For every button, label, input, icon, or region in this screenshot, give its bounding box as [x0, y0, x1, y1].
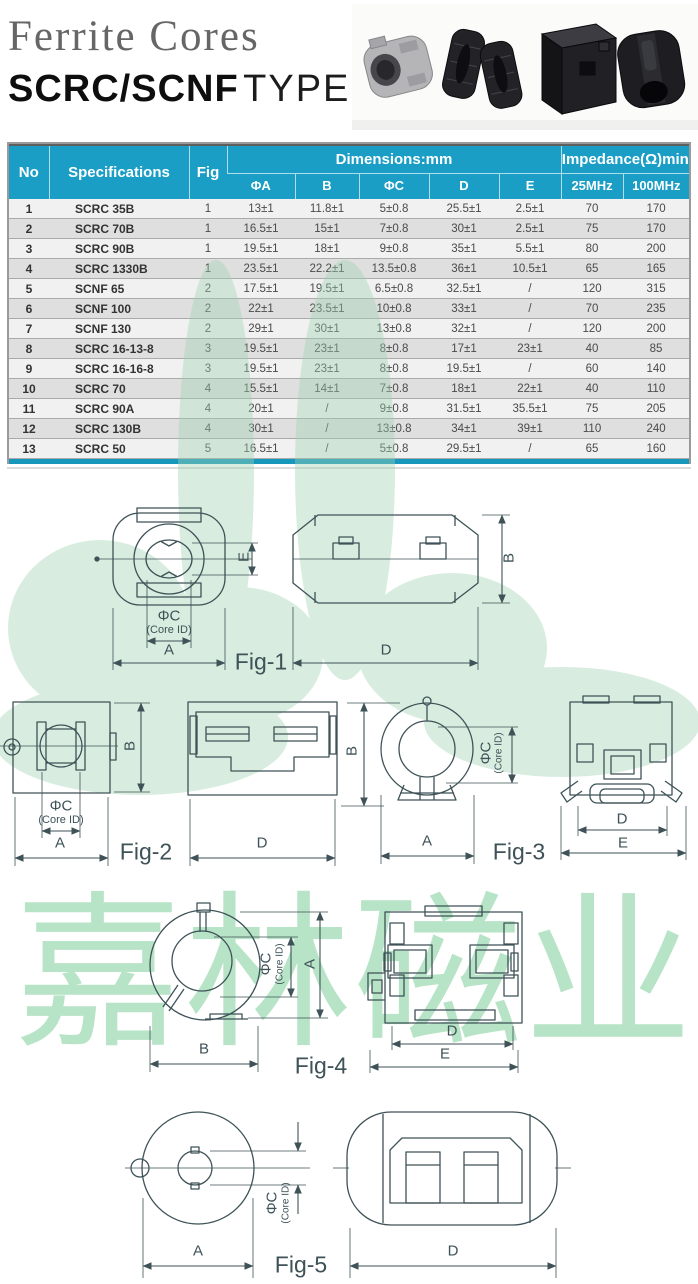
table-row: 6SCNF 100222±123.5±110±0.833±1/70235 [9, 299, 689, 319]
cell-spec: SCNF 65 [49, 279, 189, 299]
cell-a: 20±1 [227, 399, 295, 419]
cell-no: 10 [9, 379, 49, 399]
fig2-core-id-label: (Core ID) [38, 814, 83, 826]
cell-mhz25: 75 [561, 219, 623, 239]
cell-spec: SCRC 16-13-8 [49, 339, 189, 359]
product-photo [352, 4, 698, 130]
cell-mhz25: 75 [561, 399, 623, 419]
accent-bar-shadow [7, 467, 691, 469]
cell-no: 2 [9, 219, 49, 239]
fig1-dim-phi-c: ΦC [158, 608, 181, 625]
cell-d: 32±1 [429, 319, 499, 339]
cell-spec: SCRC 35B [49, 199, 189, 219]
cell-no: 11 [9, 399, 49, 419]
fig4-dim-a: A [302, 959, 319, 969]
cell-spec: SCRC 50 [49, 439, 189, 459]
cell-a: 15.5±1 [227, 379, 295, 399]
cell-c: 7±0.8 [359, 379, 429, 399]
col-header-specifications: Specifications [49, 145, 189, 199]
bottom-accent-bar [9, 459, 689, 464]
cell-e: / [499, 359, 561, 379]
cell-d: 31.5±1 [429, 399, 499, 419]
cell-a: 16.5±1 [227, 219, 295, 239]
fig2-caption: Fig-2 [120, 839, 172, 866]
page-title: Ferrite Cores [8, 12, 260, 61]
cell-mhz100: 240 [623, 419, 689, 439]
cell-a: 22±1 [227, 299, 295, 319]
cell-a: 23.5±1 [227, 259, 295, 279]
cell-fig: 4 [189, 399, 227, 419]
cell-no: 12 [9, 419, 49, 439]
col-header-no: No [9, 145, 49, 199]
fig1-dim-e: E [236, 552, 253, 562]
subtitle-series: SCRC/SCNF [8, 68, 239, 110]
table-row: 8SCRC 16-13-8319.5±123±18±0.817±123±1408… [9, 339, 689, 359]
col-header-b: B [295, 174, 359, 200]
cell-spec: SCRC 70B [49, 219, 189, 239]
cell-a: 16.5±1 [227, 439, 295, 459]
fig3-dim-phi-c: ΦC [478, 742, 495, 765]
fig5-dim-a: A [193, 1243, 203, 1260]
cell-d: 17±1 [429, 339, 499, 359]
table-row: 1SCRC 35B113±111.8±15±0.825.5±12.5±17017… [9, 199, 689, 219]
cell-a: 19.5±1 [227, 239, 295, 259]
cell-d: 36±1 [429, 259, 499, 279]
cell-mhz100: 110 [623, 379, 689, 399]
cell-b: 23±1 [295, 359, 359, 379]
cell-b: 14±1 [295, 379, 359, 399]
cell-mhz25: 110 [561, 419, 623, 439]
fig3-dim-a: A [422, 833, 432, 850]
cell-mhz25: 120 [561, 279, 623, 299]
cell-fig: 1 [189, 239, 227, 259]
col-header-e: E [499, 174, 561, 200]
table-row: 4SCRC 1330B123.5±122.2±113.5±0.836±110.5… [9, 259, 689, 279]
cell-no: 3 [9, 239, 49, 259]
cell-c: 5±0.8 [359, 439, 429, 459]
box-core-photo [542, 24, 616, 114]
cell-mhz100: 235 [623, 299, 689, 319]
fig1-caption: Fig-1 [235, 649, 287, 676]
cell-d: 30±1 [429, 219, 499, 239]
datasheet-page: { "colors": { "header_blue": "#1a9ec6", … [0, 0, 698, 1284]
cell-a: 17.5±1 [227, 279, 295, 299]
cell-d: 19.5±1 [429, 359, 499, 379]
cell-mhz100: 140 [623, 359, 689, 379]
cell-mhz100: 170 [623, 219, 689, 239]
col-header-100mhz: 100MHz [623, 174, 689, 200]
cell-mhz100: 315 [623, 279, 689, 299]
cell-mhz25: 65 [561, 439, 623, 459]
cell-no: 13 [9, 439, 49, 459]
cell-c: 9±0.8 [359, 239, 429, 259]
table-row: 10SCRC 70415.5±114±17±0.818±122±140110 [9, 379, 689, 399]
cell-mhz100: 200 [623, 239, 689, 259]
cell-b: 11.8±1 [295, 199, 359, 219]
cell-mhz25: 40 [561, 339, 623, 359]
cell-a: 13±1 [227, 199, 295, 219]
cell-spec: SCRC 70 [49, 379, 189, 399]
cell-e: / [499, 279, 561, 299]
cell-spec: SCRC 130B [49, 419, 189, 439]
table-row: 2SCRC 70B116.5±115±17±0.830±12.5±175170 [9, 219, 689, 239]
cell-d: 32.5±1 [429, 279, 499, 299]
fig4-dim-d: D [447, 1023, 458, 1040]
cell-spec: SCRC 1330B [49, 259, 189, 279]
cell-d: 18±1 [429, 379, 499, 399]
cell-mhz25: 70 [561, 199, 623, 219]
fig3-dim-d: D [617, 811, 628, 828]
fig3-dim-e: E [618, 835, 628, 852]
cell-e: 23±1 [499, 339, 561, 359]
cell-no: 6 [9, 299, 49, 319]
fig5-dim-d: D [448, 1243, 459, 1260]
cell-d: 34±1 [429, 419, 499, 439]
fig5-drawing [95, 1105, 575, 1284]
cell-b: 23.5±1 [295, 299, 359, 319]
cell-a: 30±1 [227, 419, 295, 439]
subtitle-type: TYPE [243, 68, 350, 110]
cell-mhz25: 60 [561, 359, 623, 379]
fig5-caption: Fig-5 [275, 1252, 327, 1279]
cell-c: 13.5±0.8 [359, 259, 429, 279]
cell-no: 4 [9, 259, 49, 279]
cell-no: 8 [9, 339, 49, 359]
cell-b: 30±1 [295, 319, 359, 339]
cell-e: 2.5±1 [499, 199, 561, 219]
cell-mhz100: 205 [623, 399, 689, 419]
cell-c: 7±0.8 [359, 219, 429, 239]
cell-mhz100: 160 [623, 439, 689, 459]
fig1-dim-b: B [501, 553, 518, 563]
cell-b: 15±1 [295, 219, 359, 239]
cell-mhz100: 165 [623, 259, 689, 279]
cell-mhz25: 120 [561, 319, 623, 339]
cell-c: 8±0.8 [359, 359, 429, 379]
cell-c: 6.5±0.8 [359, 279, 429, 299]
fig1-dim-a: A [164, 642, 174, 659]
cell-b: 23±1 [295, 339, 359, 359]
cell-e: 35.5±1 [499, 399, 561, 419]
cell-e: / [499, 439, 561, 459]
cell-mhz25: 40 [561, 379, 623, 399]
cell-c: 5±0.8 [359, 199, 429, 219]
fig3-caption: Fig-3 [493, 839, 545, 866]
fig1-dim-d: D [381, 642, 392, 659]
cell-spec: SCNF 100 [49, 299, 189, 319]
cell-fig: 4 [189, 379, 227, 399]
cell-fig: 3 [189, 359, 227, 379]
cell-a: 19.5±1 [227, 359, 295, 379]
fig4-dim-phi-c: ΦC [258, 953, 275, 976]
cell-e: 22±1 [499, 379, 561, 399]
fig2-dim-a: A [55, 835, 65, 852]
fig5-core-id-label: (Core ID) [281, 1182, 292, 1223]
cell-fig: 2 [189, 299, 227, 319]
cell-no: 7 [9, 319, 49, 339]
cell-e: / [499, 299, 561, 319]
fig4-dim-e: E [440, 1046, 450, 1063]
fig2-dim-b: B [122, 741, 139, 751]
cell-a: 29±1 [227, 319, 295, 339]
cell-spec: SCRC 90B [49, 239, 189, 259]
cell-fig: 4 [189, 419, 227, 439]
table-row: 7SCNF 130229±130±113±0.832±1/120200 [9, 319, 689, 339]
cell-mhz100: 85 [623, 339, 689, 359]
cell-mhz100: 170 [623, 199, 689, 219]
cell-c: 8±0.8 [359, 339, 429, 359]
fig2-dim-phi-c: ΦC [50, 798, 73, 815]
cell-spec: SCRC 90A [49, 399, 189, 419]
cell-fig: 1 [189, 219, 227, 239]
cell-c: 13±0.8 [359, 319, 429, 339]
table-row: 5SCNF 65217.5±119.5±16.5±0.832.5±1/12031… [9, 279, 689, 299]
cell-b: 18±1 [295, 239, 359, 259]
table-row: 3SCRC 90B119.5±118±19±0.835±15.5±180200 [9, 239, 689, 259]
cell-e: 10.5±1 [499, 259, 561, 279]
cell-d: 29.5±1 [429, 439, 499, 459]
cell-e: / [499, 319, 561, 339]
table-row: 13SCRC 50516.5±1/5±0.829.5±1/65160 [9, 439, 689, 459]
col-header-fig: Fig [189, 145, 227, 199]
cell-mhz25: 65 [561, 259, 623, 279]
cell-d: 35±1 [429, 239, 499, 259]
fig4-drawing [80, 880, 540, 1080]
cell-fig: 1 [189, 199, 227, 219]
cell-no: 5 [9, 279, 49, 299]
col-header-phi-c: ΦC [359, 174, 429, 200]
cell-b: / [295, 439, 359, 459]
cylinder-core-photo [615, 28, 688, 111]
spec-table-body: 1SCRC 35B113±111.8±15±0.825.5±12.5±17017… [9, 199, 689, 459]
cell-no: 9 [9, 359, 49, 379]
cell-c: 10±0.8 [359, 299, 429, 319]
cell-spec: SCRC 16-16-8 [49, 359, 189, 379]
cell-mhz25: 80 [561, 239, 623, 259]
page-subtitle: SCRC/SCNF TYPE [8, 68, 350, 111]
fig3-dim-b: B [344, 746, 361, 756]
cell-a: 19.5±1 [227, 339, 295, 359]
cell-e: 39±1 [499, 419, 561, 439]
cell-b: 19.5±1 [295, 279, 359, 299]
fig3-core-id-label: (Core ID) [494, 732, 505, 773]
cell-c: 9±0.8 [359, 399, 429, 419]
cell-mhz100: 200 [623, 319, 689, 339]
table-row: 11SCRC 90A420±1/9±0.831.5±135.5±175205 [9, 399, 689, 419]
cell-e: 2.5±1 [499, 219, 561, 239]
col-header-25mhz: 25MHz [561, 174, 623, 200]
cell-no: 1 [9, 199, 49, 219]
cell-c: 13±0.8 [359, 419, 429, 439]
cell-mhz25: 70 [561, 299, 623, 319]
cell-b: / [295, 399, 359, 419]
cell-fig: 2 [189, 279, 227, 299]
table-row: 12SCRC 130B430±1/13±0.834±139±1110240 [9, 419, 689, 439]
cell-b: 22.2±1 [295, 259, 359, 279]
fig5-dim-phi-c: ΦC [264, 1192, 281, 1215]
group-header-dimensions: Dimensions:mm [227, 145, 561, 174]
cell-fig: 5 [189, 439, 227, 459]
group-header-impedance: Impedance(Ω)min [561, 145, 689, 174]
cell-fig: 2 [189, 319, 227, 339]
cell-spec: SCNF 130 [49, 319, 189, 339]
fig1-core-id-label: (Core ID) [146, 624, 191, 636]
col-header-d: D [429, 174, 499, 200]
spec-table: No Specifications Fig Dimensions:mm Impe… [7, 142, 691, 464]
cell-fig: 3 [189, 339, 227, 359]
cell-d: 33±1 [429, 299, 499, 319]
fig4-dim-b: B [199, 1041, 209, 1058]
fig1-drawing [85, 495, 515, 685]
cell-e: 5.5±1 [499, 239, 561, 259]
cell-fig: 1 [189, 259, 227, 279]
fig4-core-id-label: (Core ID) [275, 943, 286, 984]
fig4-caption: Fig-4 [295, 1053, 347, 1080]
table-row: 9SCRC 16-16-8319.5±123±18±0.819.5±1/6014… [9, 359, 689, 379]
cell-b: / [295, 419, 359, 439]
col-header-phi-a: ΦA [227, 174, 295, 200]
cell-d: 25.5±1 [429, 199, 499, 219]
fig2-dim-d: D [257, 835, 268, 852]
